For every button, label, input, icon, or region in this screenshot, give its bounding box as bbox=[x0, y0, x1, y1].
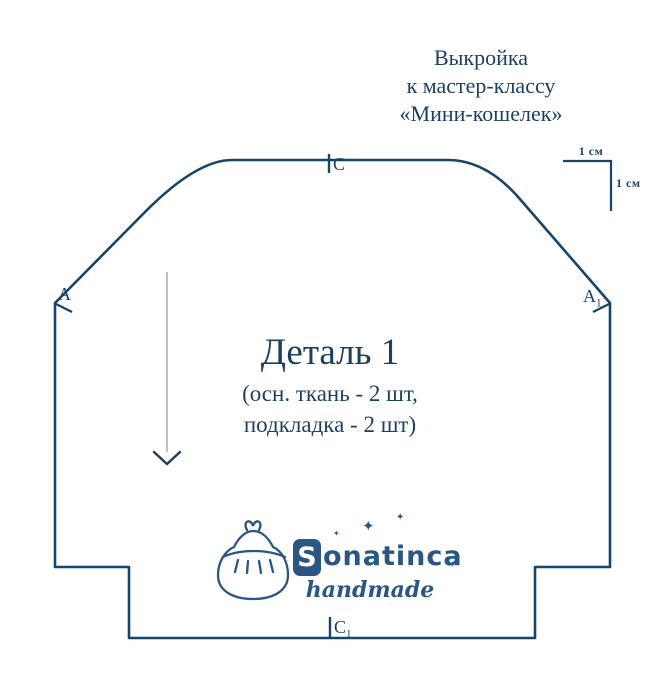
pattern-sheet: Выкройка к мастер-классу «Мини-кошелек» … bbox=[0, 0, 664, 690]
piece-title: Деталь 1 bbox=[165, 331, 495, 374]
title-line-2: к мастер-классу bbox=[370, 72, 592, 100]
point-label-a1-base: A bbox=[583, 286, 596, 306]
page-title: Выкройка к мастер-классу «Мини-кошелек» bbox=[370, 44, 592, 128]
point-label-c1-sub: 1 bbox=[346, 629, 352, 641]
star-icon: ✦ bbox=[449, 561, 457, 570]
grain-arrow-head bbox=[154, 452, 180, 464]
coin-purse-icon bbox=[218, 521, 288, 599]
title-line-3: «Мини-кошелек» bbox=[370, 100, 592, 128]
scale-vertical-label: 1 см bbox=[616, 176, 641, 191]
logo-tagline: handmade bbox=[305, 577, 435, 603]
scale-horizontal-label: 1 см bbox=[571, 144, 611, 159]
piece-note-line-2: подкладка - 2 шт) bbox=[165, 409, 495, 440]
point-label-a1-sub: 1 bbox=[596, 298, 602, 310]
star-icon: ✦ bbox=[362, 519, 375, 534]
logo-initial-badge: S bbox=[293, 539, 321, 576]
piece-notes: (осн. ткань - 2 шт, подкладка - 2 шт) bbox=[165, 378, 495, 440]
star-icon: ✦ bbox=[333, 530, 340, 538]
scale-corner-lines bbox=[563, 161, 611, 211]
logo-brand-text: onatinca bbox=[323, 541, 463, 572]
point-label-a: A bbox=[58, 284, 71, 305]
piece-note-line-1: (осн. ткань - 2 шт, bbox=[165, 378, 495, 409]
point-label-c1-base: C bbox=[334, 617, 346, 637]
star-icon: ✦ bbox=[396, 513, 404, 523]
notch-a-mark bbox=[56, 304, 72, 312]
point-label-c1: C1 bbox=[334, 617, 352, 641]
title-line-1: Выкройка bbox=[370, 44, 592, 72]
point-label-c: C bbox=[333, 154, 345, 175]
point-label-a1: A1 bbox=[583, 286, 602, 310]
